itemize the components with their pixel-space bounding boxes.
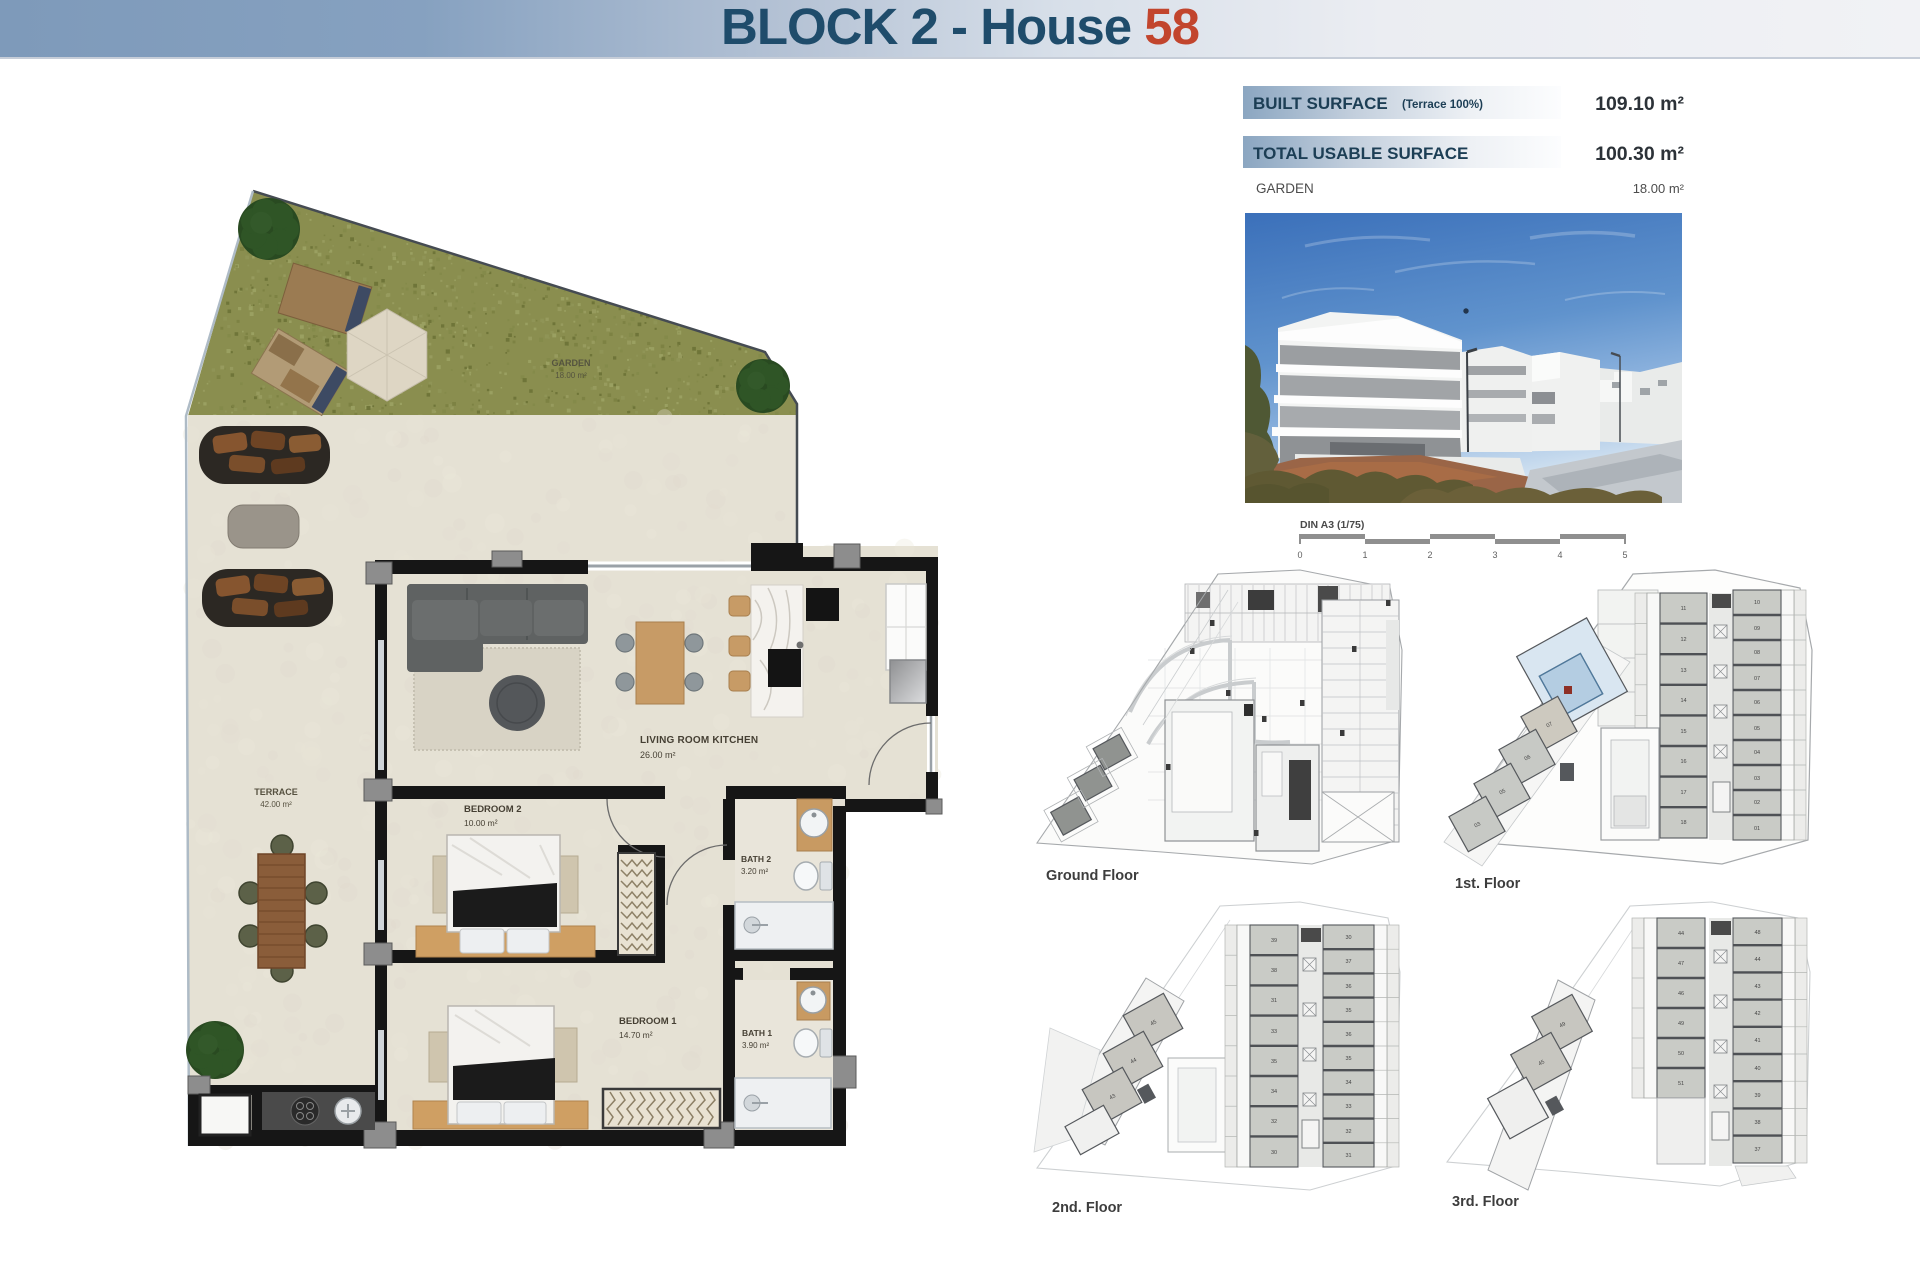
svg-text:10: 10 xyxy=(1754,600,1760,606)
svg-text:31: 31 xyxy=(1271,998,1277,1004)
svg-text:37: 37 xyxy=(1345,959,1351,965)
svg-text:3.20 m²: 3.20 m² xyxy=(741,867,768,876)
svg-text:50: 50 xyxy=(1678,1051,1684,1057)
svg-text:08: 08 xyxy=(1754,650,1760,656)
svg-text:100.30 m²: 100.30 m² xyxy=(1595,143,1684,165)
svg-text:38: 38 xyxy=(1754,1120,1760,1126)
svg-text:16: 16 xyxy=(1680,759,1686,765)
svg-text:109.10 m²: 109.10 m² xyxy=(1595,93,1684,115)
svg-text:10.00 m²: 10.00 m² xyxy=(464,818,498,828)
svg-text:03: 03 xyxy=(1754,776,1760,782)
svg-text:0: 0 xyxy=(1297,550,1302,560)
svg-text:36: 36 xyxy=(1345,1032,1351,1038)
svg-text:44: 44 xyxy=(1754,957,1760,963)
svg-text:GARDEN: GARDEN xyxy=(1256,181,1314,196)
svg-text:12: 12 xyxy=(1680,637,1686,643)
svg-text:14: 14 xyxy=(1680,698,1686,704)
svg-text:3: 3 xyxy=(1492,550,1497,560)
svg-text:BATH 1: BATH 1 xyxy=(742,1028,772,1038)
svg-text:DIN A3 (1/75): DIN A3 (1/75) xyxy=(1300,519,1364,531)
svg-text:18.00 m²: 18.00 m² xyxy=(555,371,587,380)
svg-text:36: 36 xyxy=(1345,984,1351,990)
svg-text:09: 09 xyxy=(1754,626,1760,632)
svg-text:34: 34 xyxy=(1345,1080,1351,1086)
svg-text:5: 5 xyxy=(1622,550,1627,560)
svg-text:3rd. Floor: 3rd. Floor xyxy=(1452,1194,1519,1210)
svg-text:47: 47 xyxy=(1678,961,1684,967)
svg-text:35: 35 xyxy=(1345,1056,1351,1062)
svg-text:06: 06 xyxy=(1754,700,1760,706)
svg-text:40: 40 xyxy=(1754,1066,1760,1072)
svg-text:34: 34 xyxy=(1271,1089,1277,1095)
svg-text:38: 38 xyxy=(1271,968,1277,974)
svg-text:43: 43 xyxy=(1754,984,1760,990)
svg-text:2: 2 xyxy=(1427,550,1432,560)
svg-text:30: 30 xyxy=(1271,1150,1277,1156)
svg-text:05: 05 xyxy=(1754,726,1760,732)
svg-text:17: 17 xyxy=(1680,790,1686,796)
svg-text:35: 35 xyxy=(1271,1059,1277,1065)
svg-text:Ground Floor: Ground Floor xyxy=(1046,868,1139,884)
svg-text:02: 02 xyxy=(1754,800,1760,806)
svg-text:32: 32 xyxy=(1271,1119,1277,1125)
svg-text:42: 42 xyxy=(1754,1011,1760,1017)
svg-text:41: 41 xyxy=(1754,1038,1760,1044)
svg-text:33: 33 xyxy=(1345,1104,1351,1110)
svg-text:30: 30 xyxy=(1345,935,1351,941)
svg-text:49: 49 xyxy=(1678,1021,1684,1027)
svg-text:18.00 m²: 18.00 m² xyxy=(1633,181,1685,196)
svg-text:42.00 m²: 42.00 m² xyxy=(260,800,292,809)
svg-text:51: 51 xyxy=(1678,1081,1684,1087)
svg-text:44: 44 xyxy=(1678,931,1684,937)
svg-text:1: 1 xyxy=(1362,550,1367,560)
svg-text:13: 13 xyxy=(1680,668,1686,674)
svg-text:39: 39 xyxy=(1754,1093,1760,1099)
svg-text:39: 39 xyxy=(1271,938,1277,944)
svg-text:15: 15 xyxy=(1680,729,1686,735)
svg-text:07: 07 xyxy=(1754,676,1760,682)
svg-text:18: 18 xyxy=(1680,820,1686,826)
svg-text:48: 48 xyxy=(1754,930,1760,936)
svg-text:01: 01 xyxy=(1754,826,1760,832)
svg-text:37: 37 xyxy=(1754,1147,1760,1153)
svg-text:2nd. Floor: 2nd. Floor xyxy=(1052,1200,1122,1216)
svg-text:BEDROOM 2: BEDROOM 2 xyxy=(464,804,522,815)
svg-text:35: 35 xyxy=(1345,1008,1351,1014)
svg-text:04: 04 xyxy=(1754,750,1760,756)
svg-text:BUILT SURFACE: BUILT SURFACE xyxy=(1253,94,1388,113)
svg-text:BEDROOM 1: BEDROOM 1 xyxy=(619,1016,677,1027)
svg-text:TERRACE: TERRACE xyxy=(254,787,298,797)
svg-text:33: 33 xyxy=(1271,1029,1277,1035)
svg-text:46: 46 xyxy=(1678,991,1684,997)
svg-text:BATH 2: BATH 2 xyxy=(741,854,771,864)
svg-text:LIVING ROOM KITCHEN: LIVING ROOM KITCHEN xyxy=(640,735,758,746)
svg-text:31: 31 xyxy=(1345,1153,1351,1159)
svg-text:3.90 m²: 3.90 m² xyxy=(742,1041,769,1050)
svg-text:(Terrace 100%): (Terrace 100%) xyxy=(1402,99,1483,111)
svg-text:4: 4 xyxy=(1557,550,1562,560)
svg-text:11: 11 xyxy=(1681,606,1687,612)
svg-text:GARDEN: GARDEN xyxy=(551,358,590,368)
svg-text:1st. Floor: 1st. Floor xyxy=(1455,876,1521,892)
svg-text:32: 32 xyxy=(1345,1129,1351,1135)
svg-text:TOTAL USABLE SURFACE: TOTAL USABLE SURFACE xyxy=(1253,144,1468,163)
svg-text:14.70 m²: 14.70 m² xyxy=(619,1030,653,1040)
svg-text:26.00 m²: 26.00 m² xyxy=(640,750,676,760)
